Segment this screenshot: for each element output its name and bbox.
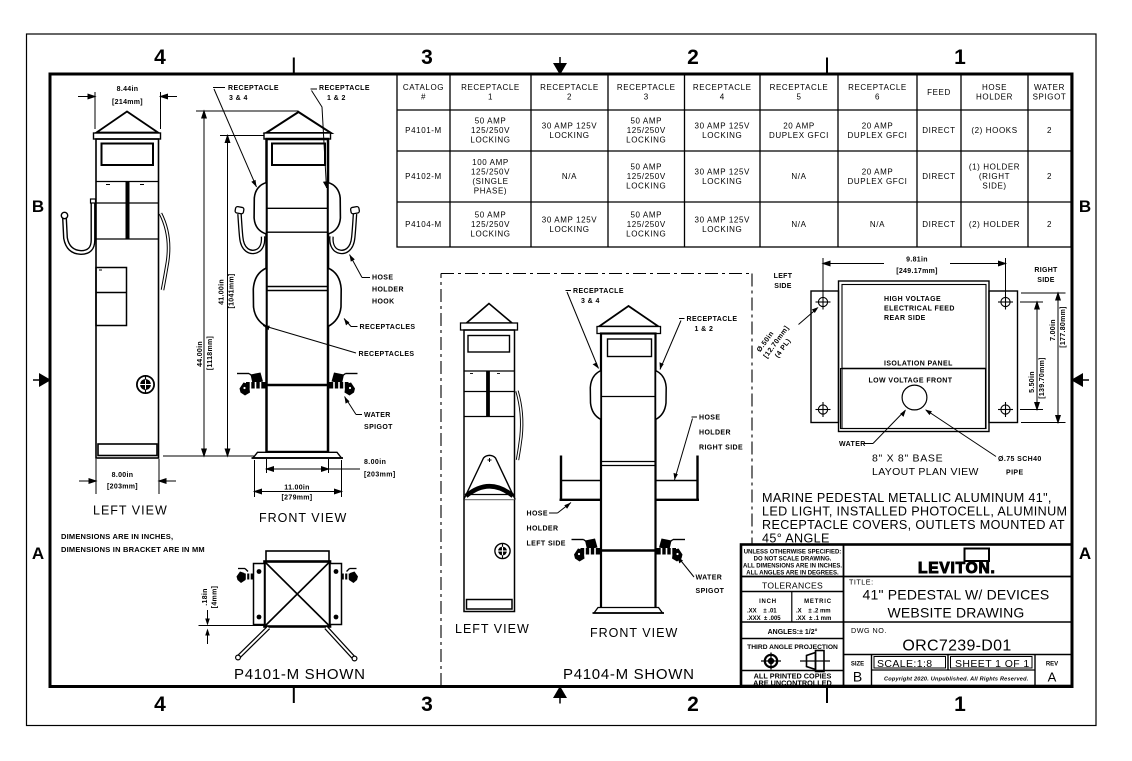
svg-text:ISOLATION PANEL: ISOLATION PANEL: [884, 361, 953, 368]
svg-text:[177.80mm]: [177.80mm]: [1060, 306, 1067, 348]
svg-text:LOCKING: LOCKING: [470, 230, 510, 239]
svg-text:DIRECT: DIRECT: [922, 126, 955, 135]
svg-text:3 & 4: 3 & 4: [581, 298, 600, 305]
svg-text:2: 2: [687, 693, 699, 716]
svg-text:11.00in: 11.00in: [284, 485, 309, 492]
svg-text:SIDE: SIDE: [774, 283, 792, 290]
svg-text:ALL ANGLES ARE IN DEGREES.: ALL ANGLES ARE IN DEGREES.: [746, 571, 839, 577]
svg-text:[214mm]: [214mm]: [112, 99, 143, 106]
svg-text:.X ± .2 mm: .X ± .2 mm: [796, 609, 831, 615]
svg-text:HOSE: HOSE: [982, 83, 1007, 92]
svg-text:[203mm]: [203mm]: [107, 484, 138, 491]
svg-text:.XX ± .01: .XX ± .01: [747, 609, 777, 615]
svg-text:LEFT: LEFT: [774, 273, 793, 280]
svg-text:ANGLES:± 1/2°: ANGLES:± 1/2°: [768, 628, 818, 636]
svg-text:(1) HOLDER: (1) HOLDER: [969, 163, 1020, 172]
svg-text:WATER: WATER: [839, 441, 866, 448]
svg-text:LED LIGHT, INSTALLED PHOTOCELL: LED LIGHT, INSTALLED PHOTOCELL, ALUMINUM: [762, 505, 1067, 519]
svg-text:20 AMP: 20 AMP: [783, 121, 815, 130]
svg-text:HOOK: HOOK: [372, 299, 395, 306]
svg-text:8.00in: 8.00in: [112, 472, 134, 479]
svg-text:SIZE: SIZE: [851, 662, 864, 668]
svg-text:RECEPTACLE: RECEPTACLE: [228, 85, 279, 92]
svg-text:2: 2: [1047, 126, 1052, 135]
svg-text:LOCKING: LOCKING: [470, 136, 510, 145]
svg-text:125/250V: 125/250V: [627, 126, 666, 135]
svg-text:SIDE): SIDE): [982, 182, 1006, 191]
svg-text:LOCKING: LOCKING: [702, 225, 742, 234]
svg-text:2: 2: [1047, 172, 1052, 181]
svg-text:DIMENSIONS IN BRACKET ARE IN M: DIMENSIONS IN BRACKET ARE IN MM: [61, 545, 205, 554]
svg-text:RECEPTACLE: RECEPTACLE: [540, 83, 599, 92]
svg-text:PIPE: PIPE: [1006, 470, 1024, 477]
svg-text:METRIC: METRIC: [804, 599, 832, 605]
svg-text:Copyright 2020. Unpublished. A: Copyright 2020. Unpublished. All Rights …: [884, 677, 1029, 683]
svg-text:SHEET 1 OF 1: SHEET 1 OF 1: [955, 658, 1030, 670]
svg-text:HOSE: HOSE: [372, 275, 393, 282]
svg-text:SPIGOT: SPIGOT: [696, 588, 725, 595]
svg-text:LOCKING: LOCKING: [702, 177, 742, 186]
svg-text:WATER: WATER: [696, 575, 723, 582]
svg-text:N/A: N/A: [870, 220, 885, 229]
svg-text:ORC7239-D01: ORC7239-D01: [902, 638, 1011, 655]
svg-text:DUPLEX GFCI: DUPLEX GFCI: [769, 131, 829, 140]
svg-text:ELECTRICAL FEED: ELECTRICAL FEED: [884, 306, 955, 313]
svg-text:2: 2: [1047, 220, 1052, 229]
svg-text:8.00in: 8.00in: [364, 459, 386, 466]
svg-text:B: B: [853, 669, 862, 685]
svg-text:HIGH VOLTAGE: HIGH VOLTAGE: [884, 296, 941, 303]
svg-text:Ø.75 SCH40: Ø.75 SCH40: [998, 456, 1042, 463]
svg-text:DO NOT SCALE DRAWING.: DO NOT SCALE DRAWING.: [754, 557, 832, 563]
svg-text:RECEPTACLE: RECEPTACLE: [617, 83, 676, 92]
svg-text:LOCKING: LOCKING: [549, 225, 589, 234]
svg-text:SPIGOT: SPIGOT: [364, 424, 393, 431]
svg-text:REAR SIDE: REAR SIDE: [884, 315, 926, 322]
svg-text:RECEPTACLE: RECEPTACLE: [687, 316, 738, 323]
svg-text:(2) HOLDER: (2) HOLDER: [969, 220, 1020, 229]
svg-text:LOW VOLTAGE FRONT: LOW VOLTAGE FRONT: [869, 378, 953, 385]
svg-text:P4104-M SHOWN: P4104-M SHOWN: [563, 666, 695, 683]
svg-text:[139.70mm]: [139.70mm]: [1039, 357, 1046, 399]
svg-text:RECEPTACLE: RECEPTACLE: [848, 83, 907, 92]
svg-text:RECEPTACLE: RECEPTACLE: [573, 288, 624, 295]
svg-text:30 AMP 125V: 30 AMP 125V: [695, 215, 750, 224]
svg-text:MARINE PEDESTAL METALLIC ALUMI: MARINE PEDESTAL METALLIC ALUMINUM 41",: [762, 491, 1052, 505]
svg-text:30 AMP 125V: 30 AMP 125V: [542, 215, 597, 224]
svg-text:LOCKING: LOCKING: [549, 131, 589, 140]
svg-text:(RIGHT: (RIGHT: [979, 172, 1010, 181]
svg-text:3: 3: [421, 693, 433, 716]
svg-text:TOLERANCES: TOLERANCES: [762, 581, 823, 591]
svg-text:1: 1: [954, 693, 966, 716]
svg-text:3: 3: [421, 46, 433, 69]
svg-text:LOCKING: LOCKING: [626, 182, 666, 191]
svg-text:HOLDER: HOLDER: [699, 430, 731, 437]
svg-text:DIRECT: DIRECT: [922, 220, 955, 229]
svg-text:RIGHT: RIGHT: [1034, 267, 1058, 274]
svg-text:FEED: FEED: [927, 88, 951, 97]
svg-text:DWG NO.: DWG NO.: [851, 626, 887, 635]
svg-text:[1118mm]: [1118mm]: [207, 336, 214, 370]
svg-text:LEVITON.: LEVITON.: [918, 560, 996, 577]
svg-text:100 AMP: 100 AMP: [472, 158, 509, 167]
svg-text:8.44in: 8.44in: [117, 86, 139, 93]
svg-text:REV: REV: [1046, 662, 1058, 668]
svg-text:1 & 2: 1 & 2: [327, 95, 346, 102]
svg-text:LEFT VIEW: LEFT VIEW: [455, 622, 530, 636]
svg-text:RECEPTACLES: RECEPTACLES: [360, 324, 416, 331]
svg-text:4: 4: [154, 46, 166, 69]
svg-text:DIRECT: DIRECT: [922, 172, 955, 181]
svg-text:B: B: [1079, 197, 1091, 216]
svg-text:HOLDER: HOLDER: [372, 287, 404, 294]
svg-text:20 AMP: 20 AMP: [862, 121, 894, 130]
svg-text:LAYOUT PLAN VIEW: LAYOUT PLAN VIEW: [872, 466, 979, 478]
svg-text:125/250V: 125/250V: [471, 220, 510, 229]
svg-text:50 AMP: 50 AMP: [475, 211, 507, 220]
svg-text:125/250V: 125/250V: [471, 167, 510, 176]
svg-text:DIMENSIONS ARE IN INCHES,: DIMENSIONS ARE IN INCHES,: [61, 532, 173, 541]
svg-text:20 AMP: 20 AMP: [862, 167, 894, 176]
svg-text:RECEPTACLE: RECEPTACLE: [693, 83, 752, 92]
svg-text:RECEPTACLE: RECEPTACLE: [461, 83, 520, 92]
svg-text:50 AMP: 50 AMP: [630, 163, 662, 172]
svg-text:50 AMP: 50 AMP: [630, 117, 662, 126]
svg-text:30 AMP 125V: 30 AMP 125V: [542, 121, 597, 130]
svg-text:30 AMP 125V: 30 AMP 125V: [695, 167, 750, 176]
svg-text:4: 4: [720, 93, 725, 102]
svg-text:9.81in: 9.81in: [906, 257, 928, 264]
svg-text:8" X 8" BASE: 8" X 8" BASE: [872, 453, 943, 465]
svg-text:44.00in: 44.00in: [197, 341, 204, 367]
svg-text:HOLDER: HOLDER: [527, 526, 559, 533]
svg-text:FRONT VIEW: FRONT VIEW: [590, 626, 678, 640]
svg-text:A: A: [1079, 544, 1091, 563]
svg-text:P4101-M SHOWN: P4101-M SHOWN: [234, 666, 366, 683]
svg-text:SPIGOT: SPIGOT: [1033, 93, 1067, 102]
svg-text:2: 2: [687, 46, 699, 69]
svg-text:A: A: [1048, 670, 1057, 685]
svg-text:.18in: .18in: [202, 588, 209, 605]
svg-text:A: A: [32, 544, 44, 563]
svg-text:RECEPTACLE COVERS, OUTLETS MOU: RECEPTACLE COVERS, OUTLETS MOUNTED AT: [762, 518, 1065, 532]
svg-text:[249.17mm]: [249.17mm]: [896, 268, 938, 275]
svg-text:HOSE: HOSE: [699, 415, 720, 422]
svg-text:41.00in: 41.00in: [219, 279, 226, 305]
svg-text:SIDE: SIDE: [1037, 277, 1055, 284]
svg-text:3: 3: [644, 93, 649, 102]
svg-text:DUPLEX GFCI: DUPLEX GFCI: [848, 131, 908, 140]
svg-text:(SINGLE: (SINGLE: [472, 177, 508, 186]
svg-text:.XXX ± .005: .XXX ± .005: [747, 616, 781, 622]
svg-text:LEFT SIDE: LEFT SIDE: [527, 541, 566, 548]
svg-text:WATER: WATER: [1034, 83, 1065, 92]
svg-text:7.00in: 7.00in: [1050, 319, 1057, 341]
svg-text:50 AMP: 50 AMP: [475, 117, 507, 126]
svg-text:125/250V: 125/250V: [627, 220, 666, 229]
svg-text:WATER: WATER: [364, 412, 391, 419]
svg-text:3 & 4: 3 & 4: [229, 95, 248, 102]
svg-text:4: 4: [154, 693, 166, 716]
svg-text:1 & 2: 1 & 2: [695, 326, 714, 333]
svg-text:125/250V: 125/250V: [471, 126, 510, 135]
svg-text:TITLE:: TITLE:: [849, 578, 874, 587]
svg-text:(2) HOOKS: (2) HOOKS: [971, 126, 1017, 135]
svg-text:P4104-M: P4104-M: [405, 220, 442, 229]
svg-text:P4101-M: P4101-M: [405, 126, 442, 135]
svg-text:ALL DIMENSIONS ARE IN INCHES.: ALL DIMENSIONS ARE IN INCHES.: [743, 564, 842, 570]
svg-text:PHASE): PHASE): [474, 186, 507, 195]
svg-text:41" PEDESTAL W/ DEVICES: 41" PEDESTAL W/ DEVICES: [863, 587, 1050, 603]
svg-text:50 AMP: 50 AMP: [630, 211, 662, 220]
svg-text:B: B: [32, 197, 44, 216]
svg-text:INCH: INCH: [759, 599, 777, 605]
svg-text:6: 6: [875, 93, 880, 102]
svg-text:1: 1: [954, 46, 966, 69]
svg-text:DUPLEX GFCI: DUPLEX GFCI: [848, 177, 908, 186]
svg-text:5: 5: [796, 93, 801, 102]
svg-text:125/250V: 125/250V: [627, 172, 666, 181]
svg-text:30 AMP 125V: 30 AMP 125V: [695, 121, 750, 130]
svg-text:.XX ± .1 mm: .XX ± .1 mm: [796, 616, 831, 622]
svg-text:RECEPTACLES: RECEPTACLES: [359, 351, 415, 358]
svg-text:CATALOG: CATALOG: [403, 83, 444, 92]
svg-text:[203mm]: [203mm]: [364, 472, 396, 479]
svg-text:SCALE:1:8: SCALE:1:8: [877, 658, 933, 670]
svg-text:LOCKING: LOCKING: [702, 131, 742, 140]
svg-text:N/A: N/A: [791, 172, 806, 181]
svg-text:RECEPTACLE: RECEPTACLE: [770, 83, 829, 92]
svg-text:[279mm]: [279mm]: [282, 495, 313, 502]
svg-text:LOCKING: LOCKING: [626, 230, 666, 239]
svg-text:LOCKING: LOCKING: [626, 136, 666, 145]
svg-text:HOLDER: HOLDER: [976, 93, 1013, 102]
svg-text:2: 2: [567, 93, 572, 102]
svg-text:1: 1: [488, 93, 493, 102]
svg-text:ARE UNCONTROLLED: ARE UNCONTROLLED: [753, 678, 832, 687]
svg-text:RIGHT SIDE: RIGHT SIDE: [699, 445, 743, 452]
svg-text:N/A: N/A: [791, 220, 806, 229]
svg-text:FRONT VIEW: FRONT VIEW: [259, 511, 347, 525]
svg-text:#: #: [421, 93, 426, 102]
svg-text:[1041mm]: [1041mm]: [229, 273, 236, 308]
svg-text:[4mm]: [4mm]: [212, 586, 219, 609]
svg-text:N/A: N/A: [562, 172, 577, 181]
svg-text:WEBSITE DRAWING: WEBSITE DRAWING: [887, 605, 1024, 621]
svg-text:P4102-M: P4102-M: [405, 172, 442, 181]
svg-text:5.50in: 5.50in: [1029, 371, 1036, 393]
svg-text:HOSE: HOSE: [527, 511, 548, 518]
svg-text:LEFT VIEW: LEFT VIEW: [93, 504, 168, 518]
svg-text:RECEPTACLE: RECEPTACLE: [319, 85, 370, 92]
svg-text:UNLESS OTHERWISE SPECIFIED:: UNLESS OTHERWISE SPECIFIED:: [744, 550, 842, 556]
